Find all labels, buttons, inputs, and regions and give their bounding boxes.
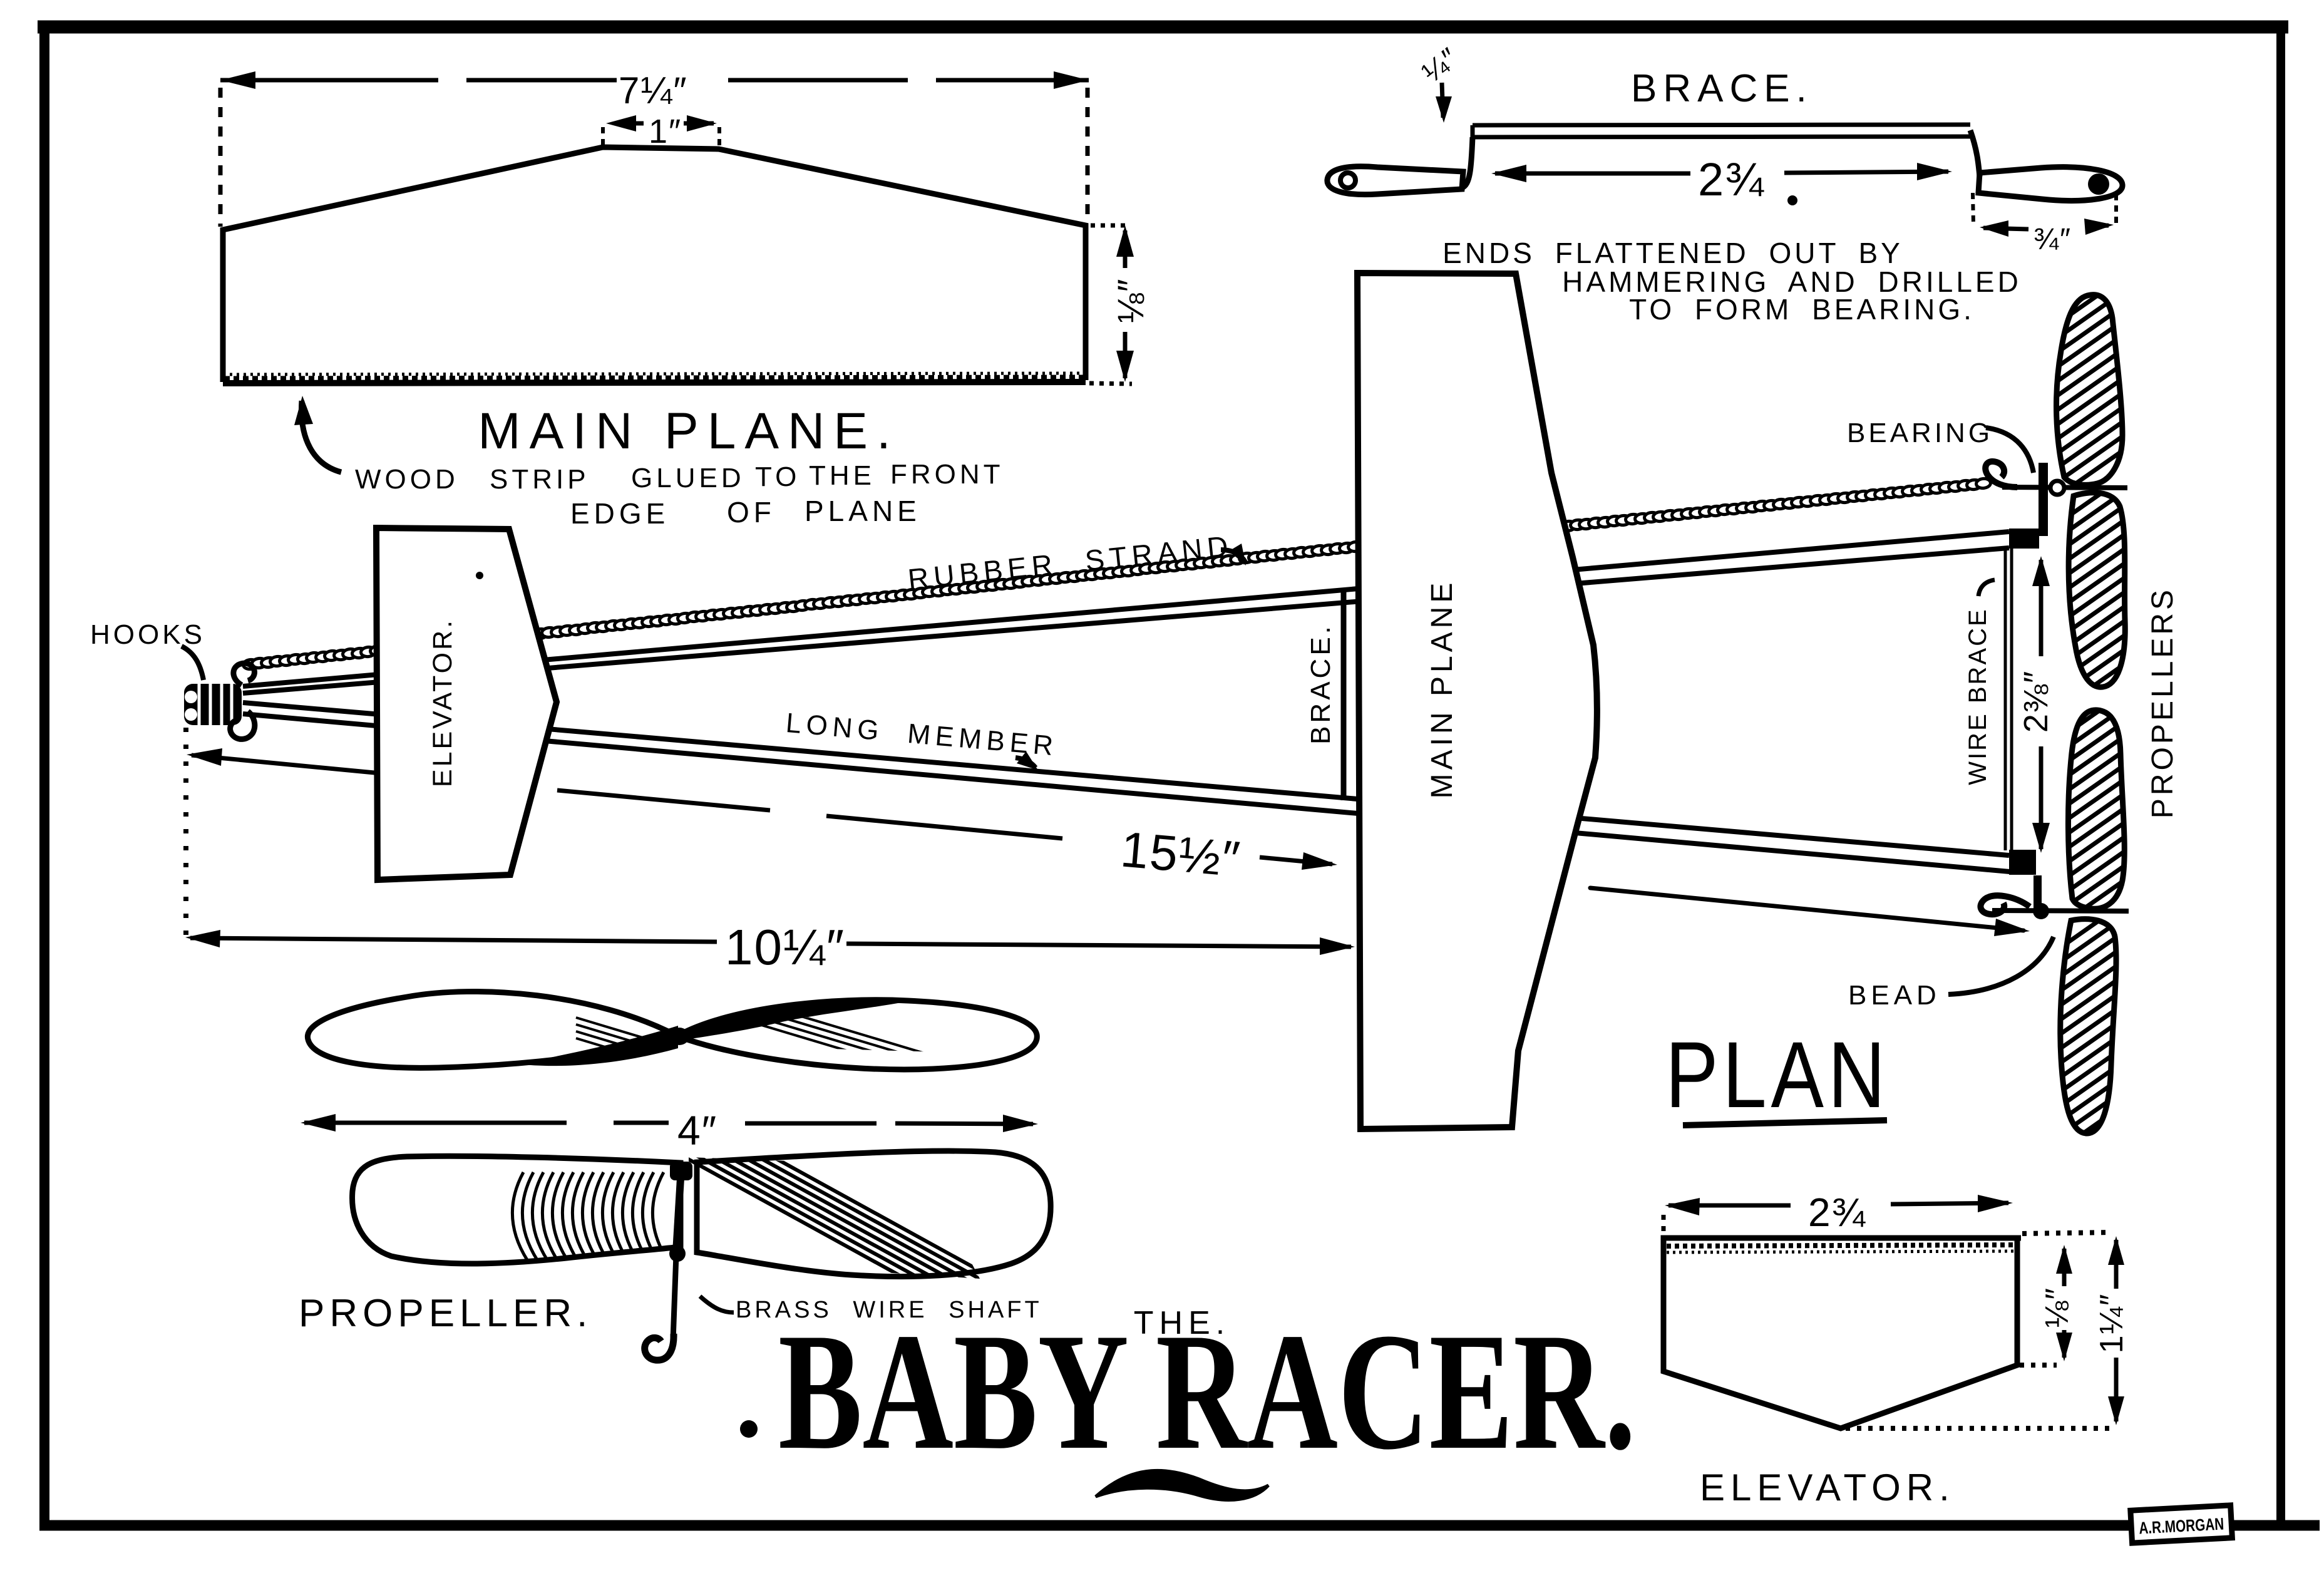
- svg-text:BABY RACER.: BABY RACER.: [778, 1298, 1636, 1484]
- svg-text:15½″: 15½″: [1119, 821, 1243, 887]
- svg-text:PLANE: PLANE: [805, 495, 921, 527]
- svg-text:1″: 1″: [649, 113, 682, 150]
- svg-text:7¼″: 7¼″: [619, 70, 688, 111]
- svg-text:2¾: 2¾: [1698, 153, 1765, 205]
- svg-text:BEAD: BEAD: [1848, 980, 1941, 1011]
- svg-text:OF: OF: [727, 496, 776, 529]
- svg-text:10¼″: 10¼″: [725, 919, 845, 975]
- svg-text:ELEVATOR.: ELEVATOR.: [428, 618, 458, 787]
- svg-text:STRIP: STRIP: [490, 464, 590, 495]
- svg-text:FRONT: FRONT: [890, 459, 1004, 490]
- svg-text:MAIN PLANE.: MAIN PLANE.: [478, 403, 899, 460]
- svg-text:BRACE.: BRACE.: [1305, 623, 1336, 745]
- svg-text:PLAN: PLAN: [1665, 1022, 1890, 1127]
- svg-text:PROPELLERS: PROPELLERS: [2146, 587, 2179, 818]
- svg-text:1¼″: 1¼″: [2094, 1293, 2130, 1354]
- svg-text:2¾: 2¾: [1808, 1190, 1866, 1235]
- svg-text:MAIN PLANE: MAIN PLANE: [1426, 579, 1459, 799]
- svg-text:⅛″: ⅛″: [1111, 278, 1151, 324]
- svg-text:WOOD: WOOD: [355, 464, 459, 495]
- svg-text:WIRE BRACE: WIRE BRACE: [1964, 607, 1992, 785]
- svg-text:ENDS FLATTENED OUT BY: ENDS FLATTENED OUT BY: [1442, 237, 1903, 269]
- svg-text:PROPELLER.: PROPELLER.: [299, 1292, 592, 1335]
- svg-text:GLUED: GLUED: [631, 463, 745, 493]
- svg-text:THE: THE: [809, 460, 875, 491]
- svg-text:2⅜″: 2⅜″: [2017, 670, 2055, 733]
- svg-text:¾″: ¾″: [2033, 223, 2072, 256]
- svg-text:BRACE.: BRACE.: [1631, 67, 1813, 110]
- svg-text:HOOKS: HOOKS: [90, 619, 205, 650]
- svg-text:BEARING: BEARING: [1847, 418, 1993, 448]
- svg-text:EDGE: EDGE: [570, 497, 669, 530]
- svg-text:⅛″: ⅛″: [2039, 1287, 2075, 1328]
- svg-text:TO FORM BEARING.: TO FORM BEARING.: [1629, 293, 1975, 326]
- svg-text:ELEVATOR.: ELEVATOR.: [1700, 1467, 1955, 1508]
- svg-text:4″: 4″: [677, 1107, 717, 1153]
- svg-text:TO: TO: [755, 462, 800, 492]
